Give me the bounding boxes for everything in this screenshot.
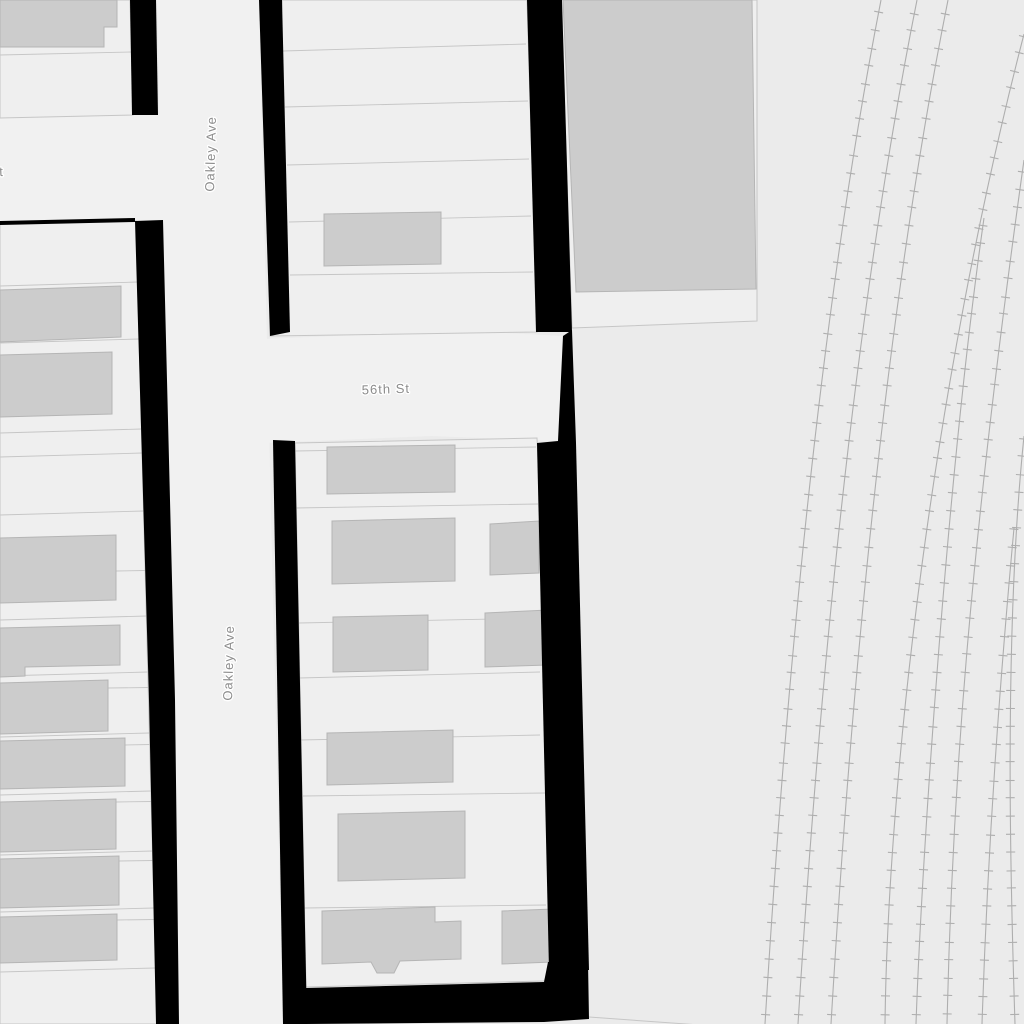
svg-text:Oakley Ave: Oakley Ave <box>202 116 219 192</box>
svg-text:Oakley Ave: Oakley Ave <box>220 625 237 701</box>
svg-text:55th St: 55th St <box>0 164 4 181</box>
svg-text:56th St: 56th St <box>361 381 410 398</box>
